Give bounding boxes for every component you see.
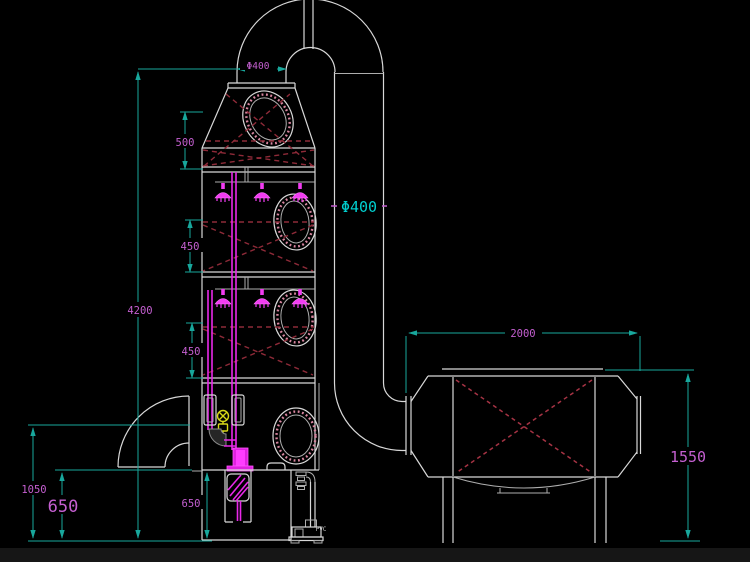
dimension-650-left: 650 <box>44 470 192 538</box>
manhole-port-bottom <box>273 408 319 464</box>
spray-nozzle-icon <box>254 183 270 202</box>
dim-downpipe-diameter-label: Φ400 <box>341 198 377 216</box>
scrubber-system-drawing: PVC 4200 Φ400 500 450 <box>0 0 750 562</box>
dimension-450-stage1: 450 <box>174 220 206 272</box>
top-duct-bend <box>237 0 384 383</box>
circulation-pump: PVC <box>289 472 327 543</box>
manhole-port-top <box>233 82 303 156</box>
tower-sump <box>202 463 319 540</box>
dimension-2000: 2000 <box>406 325 640 393</box>
dim-packing-stage1-label: 450 <box>181 241 200 253</box>
manhole-port-stage2 <box>271 288 319 348</box>
dim-packing-stage2-label: 450 <box>182 346 201 358</box>
gas-inlet-elbow <box>118 396 202 471</box>
dim-hopper-height-label: 500 <box>176 137 195 149</box>
dim-adsorber-length-label: 2000 <box>510 328 535 340</box>
packing-dashed-marks <box>203 94 314 375</box>
spray-nozzle-icon <box>292 289 308 308</box>
spray-nozzle-icon <box>254 289 270 308</box>
downpipe-to-adsorber-elbow <box>335 383 412 455</box>
dimension-500: 500 <box>169 112 203 169</box>
spray-nozzle-icon <box>215 183 231 202</box>
dim-sump-height-tower-label: 650 <box>182 498 201 510</box>
dimension-1050: 1050 <box>18 425 190 538</box>
cad-drawing-canvas: PVC 4200 Φ400 500 450 <box>0 0 750 562</box>
dim-adsorber-height-label: 1550 <box>670 448 706 466</box>
sump-dome-fitting <box>267 463 285 470</box>
dim-tower-total-height-label: 4200 <box>127 305 152 317</box>
dim-stack-outlet-diameter-label: Φ400 <box>247 61 270 72</box>
carbon-adsorber-tank <box>411 369 641 543</box>
pipe-clamp-bracket <box>232 395 244 425</box>
spray-nozzle-icon <box>215 289 231 308</box>
pipe-clamp-bracket <box>204 395 216 425</box>
pump-material-label: PVC <box>316 526 327 533</box>
sump-suction-line <box>209 429 253 521</box>
dim-sump-height-left-label: 650 <box>48 497 79 517</box>
dimension-phi400-top: Φ400 <box>237 59 286 72</box>
adsorber-media-cross <box>456 380 592 473</box>
tank-legs <box>443 477 606 543</box>
bottom-screen-strip <box>0 548 750 562</box>
tank-drain <box>497 488 550 493</box>
dimension-1550: 1550 <box>605 370 710 541</box>
dim-inlet-centerline-height-label: 1050 <box>21 484 46 496</box>
dimension-phi400-downpipe: Φ400 <box>331 197 387 216</box>
